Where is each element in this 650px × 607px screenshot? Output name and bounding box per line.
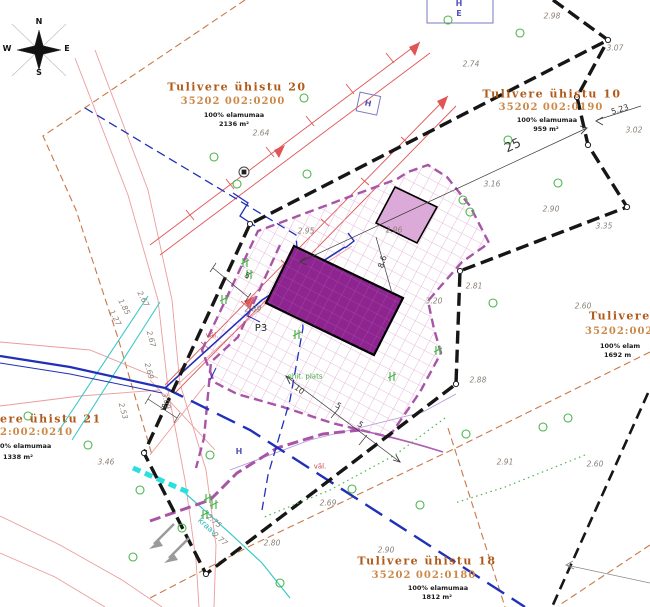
hydrant-box xyxy=(356,92,380,115)
road-direction-arrows xyxy=(149,524,189,563)
power-arrow-icon xyxy=(437,96,448,110)
power-arrow-icon xyxy=(274,145,285,158)
power-arrow-icon xyxy=(409,42,420,56)
compass-rose xyxy=(12,24,66,76)
compass-star-icon xyxy=(17,30,61,70)
hydrant-box xyxy=(427,0,493,23)
site-plan-canvas: N S W E Tulivere ühistu 2035202 002:0200… xyxy=(0,0,650,607)
site-plan-drawing xyxy=(0,0,650,607)
